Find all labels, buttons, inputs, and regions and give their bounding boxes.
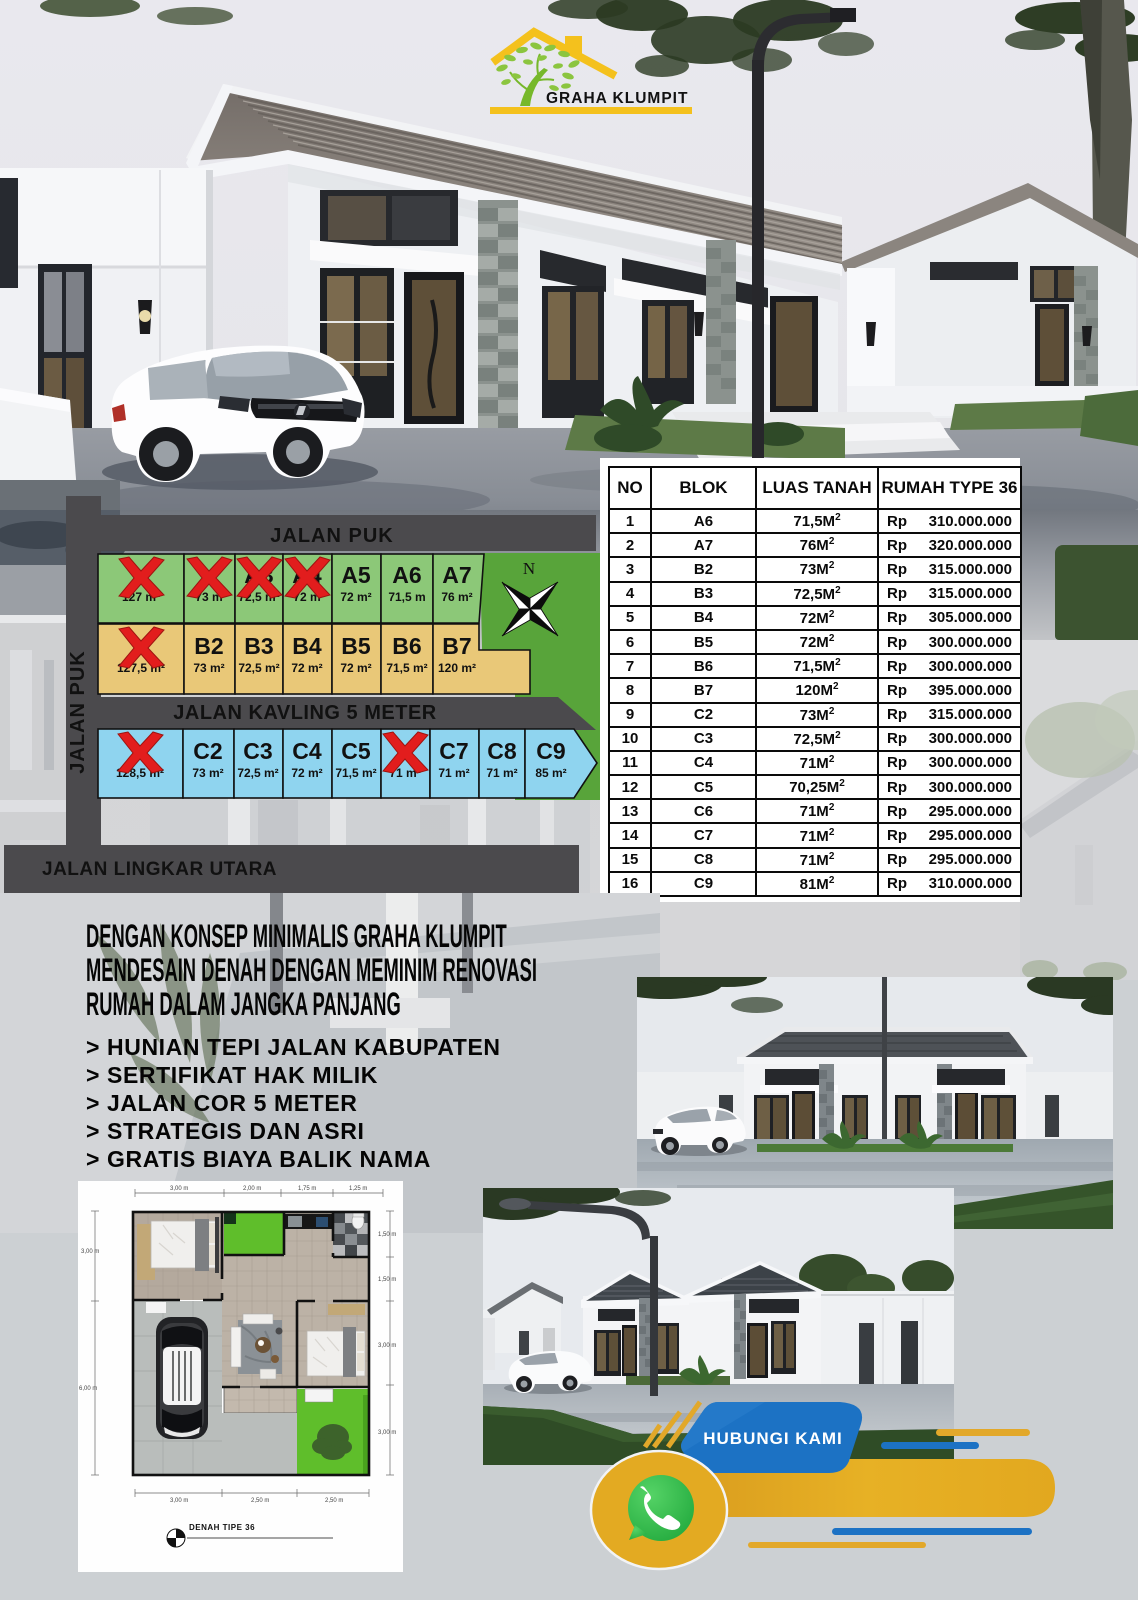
svg-text:B2: B2: [194, 633, 223, 659]
svg-text:C4: C4: [292, 738, 322, 764]
svg-text:JALAN KAVLING 5 METER: JALAN KAVLING 5 METER: [173, 702, 437, 724]
svg-text:71,5 m²: 71,5 m²: [386, 661, 427, 675]
svg-text:2,50 m: 2,50 m: [251, 1498, 269, 1504]
svg-text:C2: C2: [193, 738, 222, 764]
svg-text:C3: C3: [243, 738, 272, 764]
svg-text:85 m²: 85 m²: [535, 766, 566, 780]
svg-text:3,00 m: 3,00 m: [378, 1430, 396, 1436]
svg-text:A6: A6: [392, 562, 421, 588]
svg-text:1,75 m: 1,75 m: [298, 1186, 316, 1192]
svg-text:120 m²: 120 m²: [438, 661, 476, 675]
svg-text:B6: B6: [392, 633, 421, 659]
svg-text:72 m²: 72 m²: [340, 590, 371, 604]
svg-text:71 m²: 71 m²: [438, 766, 469, 780]
svg-text:B4: B4: [292, 633, 322, 659]
svg-text:JALAN LINGKAR UTARA: JALAN LINGKAR UTARA: [42, 859, 277, 880]
svg-text:3,00 m: 3,00 m: [378, 1343, 396, 1349]
svg-text:GRAHA KLUMPIT: GRAHA KLUMPIT: [546, 90, 688, 107]
svg-text:76 m²: 76 m²: [441, 590, 472, 604]
svg-text:71,5 m: 71,5 m: [388, 590, 425, 604]
svg-text:HUBUNGI KAMI: HUBUNGI KAMI: [703, 1429, 843, 1448]
svg-text:72,5 m²: 72,5 m²: [237, 766, 278, 780]
svg-text:C9: C9: [536, 738, 565, 764]
svg-text:6,00 m: 6,00 m: [79, 1386, 97, 1392]
svg-text:B7: B7: [442, 633, 471, 659]
svg-text:DENAH TIPE 36: DENAH TIPE 36: [189, 1523, 255, 1532]
svg-text:1,25 m: 1,25 m: [349, 1186, 367, 1192]
svg-text:72 m²: 72 m²: [291, 766, 322, 780]
svg-text:2,00 m: 2,00 m: [243, 1186, 261, 1192]
svg-text:3,00 m: 3,00 m: [81, 1249, 99, 1255]
svg-text:N: N: [523, 559, 535, 578]
svg-text:1,50 m: 1,50 m: [378, 1277, 396, 1283]
svg-text:72,5 m²: 72,5 m²: [238, 661, 279, 675]
svg-text:3,00 m: 3,00 m: [170, 1498, 188, 1504]
svg-text:1,50 m: 1,50 m: [378, 1232, 396, 1238]
svg-text:3,00 m: 3,00 m: [170, 1186, 188, 1192]
svg-text:C8: C8: [487, 738, 517, 764]
svg-text:71 m²: 71 m²: [486, 766, 517, 780]
svg-text:72 m²: 72 m²: [340, 661, 371, 675]
svg-text:B3: B3: [244, 633, 273, 659]
svg-text:B5: B5: [341, 633, 371, 659]
svg-text:JALAN PUK: JALAN PUK: [67, 650, 89, 773]
svg-text:73 m²: 73 m²: [193, 661, 224, 675]
svg-text:A7: A7: [442, 562, 471, 588]
svg-text:C5: C5: [341, 738, 371, 764]
svg-text:71,5 m²: 71,5 m²: [335, 766, 376, 780]
svg-text:2,50 m: 2,50 m: [325, 1498, 343, 1504]
svg-text:72 m²: 72 m²: [291, 661, 322, 675]
svg-text:JALAN PUK: JALAN PUK: [270, 525, 393, 547]
svg-text:C7: C7: [439, 738, 468, 764]
svg-text:73 m²: 73 m²: [192, 766, 223, 780]
svg-text:A5: A5: [341, 562, 371, 588]
